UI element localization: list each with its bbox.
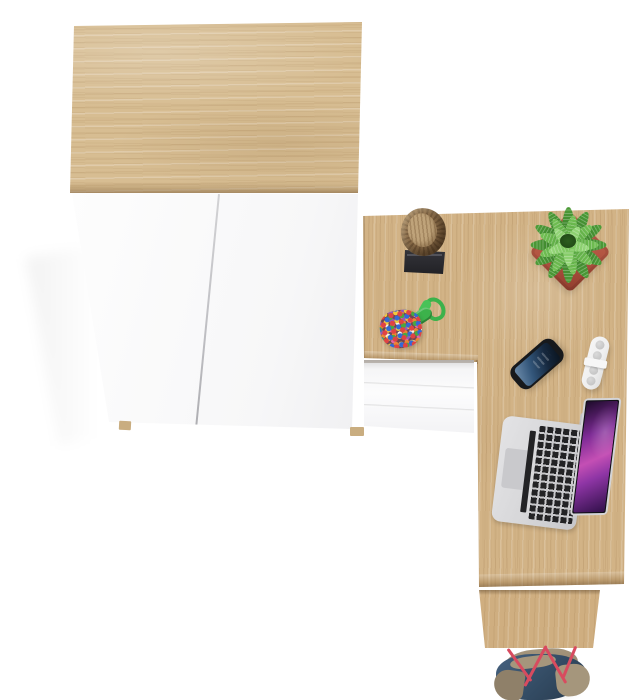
product-photo-scene <box>0 0 643 700</box>
desk-front-edge <box>478 571 625 587</box>
desk-leg-panel <box>479 590 600 648</box>
drawer-unit <box>364 360 474 433</box>
wardrobe-door-seam <box>195 194 220 429</box>
tote-bag <box>494 644 592 700</box>
organizer-hole <box>586 375 597 386</box>
wardrobe-top-front-edge <box>70 182 362 193</box>
desk-left-edge <box>363 216 365 359</box>
wardrobe-top-panel <box>70 22 362 193</box>
desk-panel-seam <box>474 360 477 436</box>
plant-center <box>560 234 576 248</box>
wardrobe-foot-left <box>119 421 131 431</box>
log-vase-top <box>405 210 440 249</box>
drawer-seam <box>364 382 474 389</box>
bag-corner <box>554 662 591 697</box>
smartphone-screen-content <box>532 350 553 370</box>
organizer-band <box>583 357 607 369</box>
wardrobe-doors <box>70 193 358 430</box>
bag-corner <box>492 668 526 700</box>
wardrobe-foot-right <box>350 427 364 436</box>
organizer-hole <box>595 340 606 351</box>
drawer-seam <box>364 404 474 411</box>
